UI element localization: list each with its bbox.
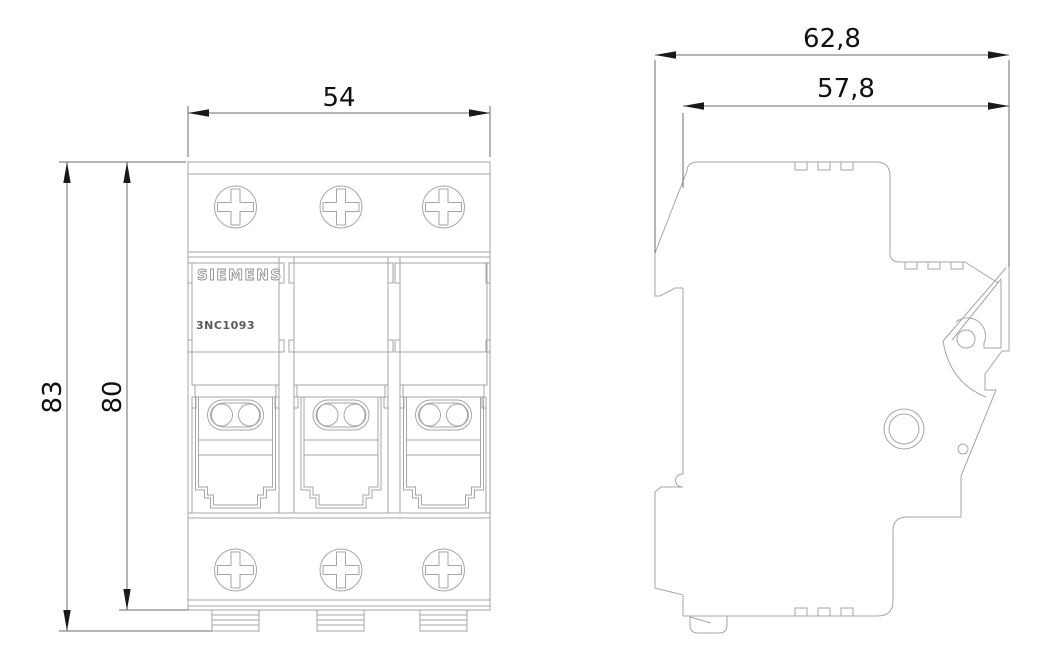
phillips-screw-icon — [423, 549, 465, 591]
fuse-handle — [404, 397, 484, 508]
side-mounting-hole — [884, 409, 924, 449]
front-fuse-handles — [192, 397, 486, 513]
dimension-side-depth-body: 57,8 — [683, 74, 1009, 188]
phillips-screw-icon — [423, 186, 465, 228]
side-foot — [690, 616, 727, 633]
dimension-front-width: 54 — [188, 83, 490, 157]
phillips-screw-icon — [215, 186, 257, 228]
mounting-foot — [212, 610, 259, 631]
front-body-outline — [188, 162, 490, 610]
dimension-front-height-body: 80 — [98, 162, 188, 610]
side-mounting-hole-inner — [889, 414, 919, 444]
front-mounting-feet — [212, 610, 467, 631]
front-lower-divider-lines — [188, 513, 490, 518]
side-view — [655, 162, 1009, 633]
front-bottom-strip-lines — [188, 600, 490, 606]
side-front-upper-outline — [655, 171, 687, 474]
phillips-screw-icon — [320, 186, 362, 228]
front-mid-divider-lines — [188, 252, 490, 257]
front-top-terminal-screws — [215, 186, 465, 228]
dim-front-height-overall-label: 83 — [38, 380, 68, 413]
phillips-screw-icon — [215, 549, 257, 591]
side-front-lower-outline — [655, 474, 683, 616]
dim-front-height-body-label: 80 — [98, 380, 128, 413]
side-bottom-outline — [683, 476, 961, 616]
phillips-screw-icon — [320, 549, 362, 591]
mounting-foot — [420, 610, 467, 631]
dimension-side-depth-overall: 62,8 — [655, 24, 1009, 267]
dimension-drawing: SIEMENS 3NC1093 — [0, 0, 1050, 658]
front-view: SIEMENS 3NC1093 — [188, 162, 490, 631]
fuse-handle — [196, 397, 276, 508]
mounting-foot — [317, 610, 364, 631]
brand-label: SIEMENS — [197, 266, 283, 284]
din-rail-clip — [943, 262, 1009, 476]
dim-side-depth-body-label: 57,8 — [817, 74, 875, 104]
dim-side-depth-overall-label: 62,8 — [803, 24, 861, 54]
fuse-handle — [301, 397, 381, 508]
side-top-outline — [687, 162, 965, 262]
front-bottom-terminal-screws — [215, 549, 465, 591]
dim-front-width-label: 54 — [322, 83, 355, 113]
drawing-canvas: SIEMENS 3NC1093 — [0, 0, 1050, 658]
model-label: 3NC1093 — [196, 319, 255, 332]
